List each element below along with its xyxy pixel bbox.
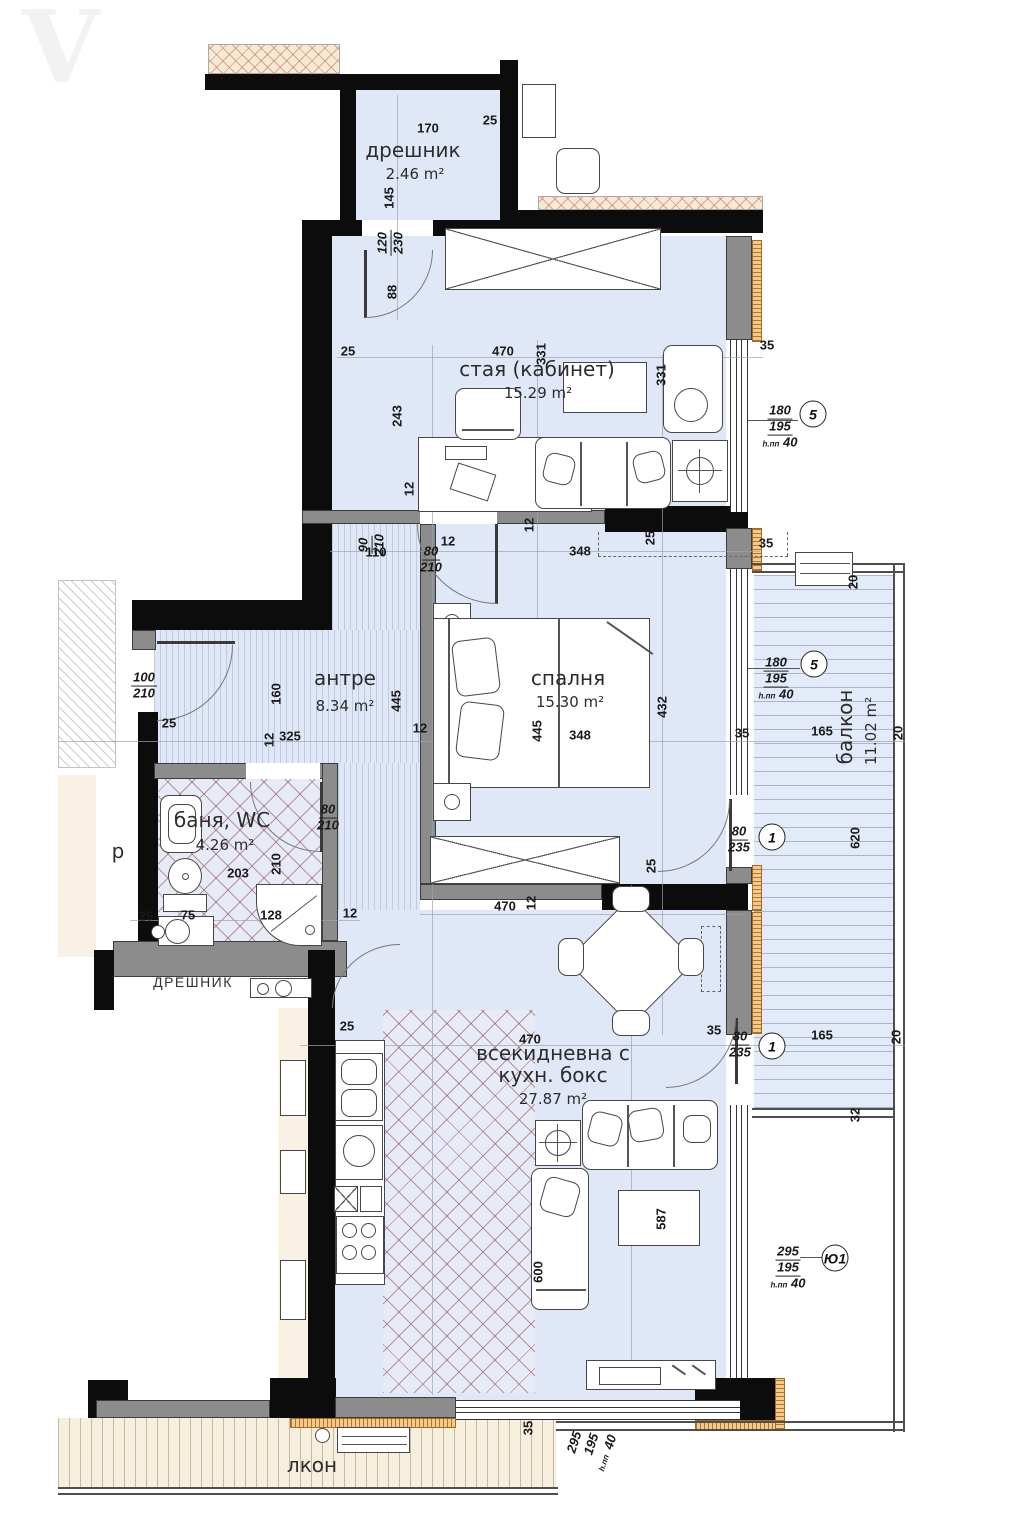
wall (322, 763, 338, 941)
stove (336, 1216, 384, 1274)
ac-unit-south (337, 1427, 410, 1453)
lintel-dashed (598, 532, 599, 556)
dim-label: 32 (848, 1108, 863, 1122)
dim-label: 331 (654, 364, 669, 386)
window (730, 569, 748, 795)
dim-label: 348 (569, 544, 591, 559)
wall (726, 910, 752, 1035)
dim-label: 470 (494, 899, 516, 914)
window (456, 1400, 740, 1420)
opening-size-label: 120230 (376, 230, 407, 256)
dim-label: 25 (340, 1019, 354, 1034)
dim-label: 445 (389, 690, 404, 712)
room-label-balcony: балкон (833, 690, 857, 765)
grid-line (420, 914, 746, 915)
sofa (582, 1100, 718, 1170)
lintel-dashed (598, 556, 788, 557)
dim-label: 35 (707, 1023, 721, 1038)
dim-label: 35 (760, 338, 774, 353)
floor-plan: V (0, 0, 1034, 1536)
wall (132, 600, 310, 630)
wall (726, 528, 752, 569)
dim-label: 12 (441, 534, 455, 549)
neighbor-counter (250, 978, 312, 998)
chair (558, 938, 584, 976)
washing-machine (335, 1125, 383, 1180)
dim-label: 88 (385, 285, 400, 299)
room-label-closet: дрешник (365, 138, 460, 162)
insulation (752, 865, 762, 911)
corridor-fragment-label: р (112, 839, 125, 863)
opening-size-label: 80210 (420, 545, 442, 576)
nightstand (433, 783, 471, 821)
chair (678, 938, 704, 976)
door-mark-1: 1 (759, 1033, 786, 1060)
dim-label: 12 (522, 518, 537, 532)
dim-label: 203 (227, 866, 249, 881)
window-size-label: 295195 h.пп 40 (771, 1245, 806, 1292)
wall (500, 60, 518, 212)
balcony-railing (556, 1421, 905, 1423)
neighbor-fixture (280, 1260, 306, 1320)
neighbor-bath-sink (522, 84, 556, 138)
dim-label: 331 (534, 343, 549, 365)
dim-label: 12 (524, 896, 539, 910)
wall (205, 74, 512, 90)
toilet-bowl (168, 858, 202, 894)
window-size-label: 180195 h.пп 40 (763, 404, 798, 451)
room-area-bath: 4.26 m² (196, 836, 255, 854)
kitchen-sink (335, 1053, 383, 1121)
chair (612, 886, 650, 912)
room-label-balcony-south: лкон (287, 1453, 337, 1477)
wall (726, 236, 752, 340)
dim-label: 620 (848, 827, 863, 849)
door-size-label: 80235 (728, 825, 750, 856)
shaft-dashed (701, 926, 721, 992)
dim-label: 25 (139, 909, 153, 924)
door-mark-1: 1 (759, 824, 786, 851)
dim-label: 25 (162, 716, 176, 731)
balcony-railing (58, 1487, 558, 1489)
room-area-balcony: 11.02 m² (862, 697, 880, 765)
dim-label: 35 (735, 726, 749, 741)
neighbor-wall-hatch (538, 196, 763, 210)
wall (96, 1400, 270, 1418)
window-mark-5: 5 (801, 651, 828, 678)
dim-label: 170 (417, 121, 439, 136)
wardrobe (445, 228, 661, 290)
dim-label: 587 (654, 1208, 669, 1230)
dim-label: 12 (402, 482, 417, 496)
sofa-study (535, 437, 671, 509)
dim-label: 160 (269, 683, 284, 705)
neighbor-fixture (280, 1060, 306, 1116)
neighbor-wall-hatch (208, 44, 340, 74)
room-label-living-2: кухн. бокс (498, 1063, 607, 1087)
balcony-railing (903, 563, 905, 1432)
dim-label: 165 (811, 724, 833, 739)
neighbor-closet-label: ДРЕШНИК (153, 974, 233, 990)
wall (335, 1397, 456, 1418)
note-label: h.пп (597, 1454, 611, 1473)
window (730, 1105, 748, 1378)
window-mark-yu1: Ю1 (822, 1245, 849, 1272)
stairwell-hatch (58, 580, 116, 768)
side-table (535, 1120, 581, 1166)
insulation (752, 912, 762, 1034)
door-opening (246, 763, 320, 779)
dim-label: 20 (889, 1030, 904, 1044)
armchair (663, 345, 723, 433)
entry-door-leaf (157, 641, 235, 644)
ac-unit-east (795, 552, 853, 586)
room-label-hall: антре (314, 666, 376, 690)
cabinet (334, 1186, 358, 1212)
dim-label: 432 (655, 696, 670, 718)
wall (302, 220, 362, 236)
balcony-railing (58, 1493, 558, 1495)
dim-label: 445 (530, 720, 545, 742)
wardrobe (430, 836, 620, 884)
balcony-edge (752, 1116, 895, 1118)
room-area-bedroom: 15.30 m² (536, 693, 604, 711)
dim-label: 25 (643, 531, 658, 545)
wall (94, 950, 114, 1010)
wall (270, 1378, 336, 1418)
neighbor-floor-west (58, 775, 96, 957)
dim-label: 165 (811, 1028, 833, 1043)
dim-label: 25 (644, 859, 659, 873)
dim-label: 348 (569, 728, 591, 743)
dim-label: 325 (279, 729, 301, 744)
dim-label: 600 (531, 1261, 546, 1283)
dim-label: 40 (601, 1433, 620, 1451)
side-table (672, 440, 728, 502)
wall-sleeve (315, 1428, 330, 1443)
dim-label: 25 (341, 344, 355, 359)
dim-label: 12 (343, 906, 357, 921)
dim-label: 110 (366, 545, 387, 560)
door-size-label: 80210 (317, 803, 339, 834)
dim-label: 470 (519, 1032, 541, 1047)
dim-label: 12 (413, 721, 427, 736)
dim-label: 35 (521, 1421, 536, 1435)
window (730, 340, 748, 512)
chair (612, 1010, 650, 1036)
dim-label: 20 (846, 575, 861, 589)
insulation (752, 240, 762, 342)
dim-label: 35 (759, 536, 773, 551)
room-area-closet: 2.46 m² (386, 165, 445, 183)
room-label-bedroom: спалня (531, 666, 605, 690)
door-size-label: 100210 (131, 671, 157, 702)
wall (302, 236, 332, 630)
wall (340, 90, 356, 222)
dim-label: 210 (269, 853, 284, 875)
room-hall-upper (332, 510, 420, 630)
dim-label: 12 (262, 733, 277, 747)
balcony-edge (752, 1108, 895, 1110)
dim-label: 75 (181, 908, 195, 923)
dim-label: 470 (492, 344, 514, 359)
dim-label: 20 (891, 726, 906, 740)
room-area-hall: 8.34 m² (316, 697, 375, 715)
window-size-label: 180195 h.пп 40 (759, 656, 794, 703)
balcony-railing (893, 563, 895, 1432)
lintel-dashed (787, 532, 788, 556)
wall (132, 630, 156, 650)
room-label-bath: баня, WC (174, 808, 270, 832)
dim-label: 243 (390, 405, 405, 427)
cabinet (360, 1186, 382, 1212)
neighbor-fixture (280, 1150, 306, 1194)
window-mark-5: 5 (800, 401, 827, 428)
neighbor-toilet (556, 148, 600, 194)
balcony-railing (556, 1429, 905, 1431)
door-size-label: 80235 (729, 1030, 751, 1061)
wall (308, 950, 335, 1395)
sofa (531, 1168, 589, 1310)
room-area-study: 15.29 m² (504, 384, 572, 402)
tv-bench (586, 1360, 716, 1390)
room-label-living-1: всекидневна с (476, 1041, 630, 1065)
watermark-logo: V (22, 0, 100, 106)
dim-label: 25 (483, 113, 497, 128)
room-area-living: 27.87 m² (519, 1090, 587, 1108)
dim-label: 128 (260, 908, 282, 923)
dim-label: 145 (382, 187, 397, 209)
grid-line (330, 551, 760, 552)
